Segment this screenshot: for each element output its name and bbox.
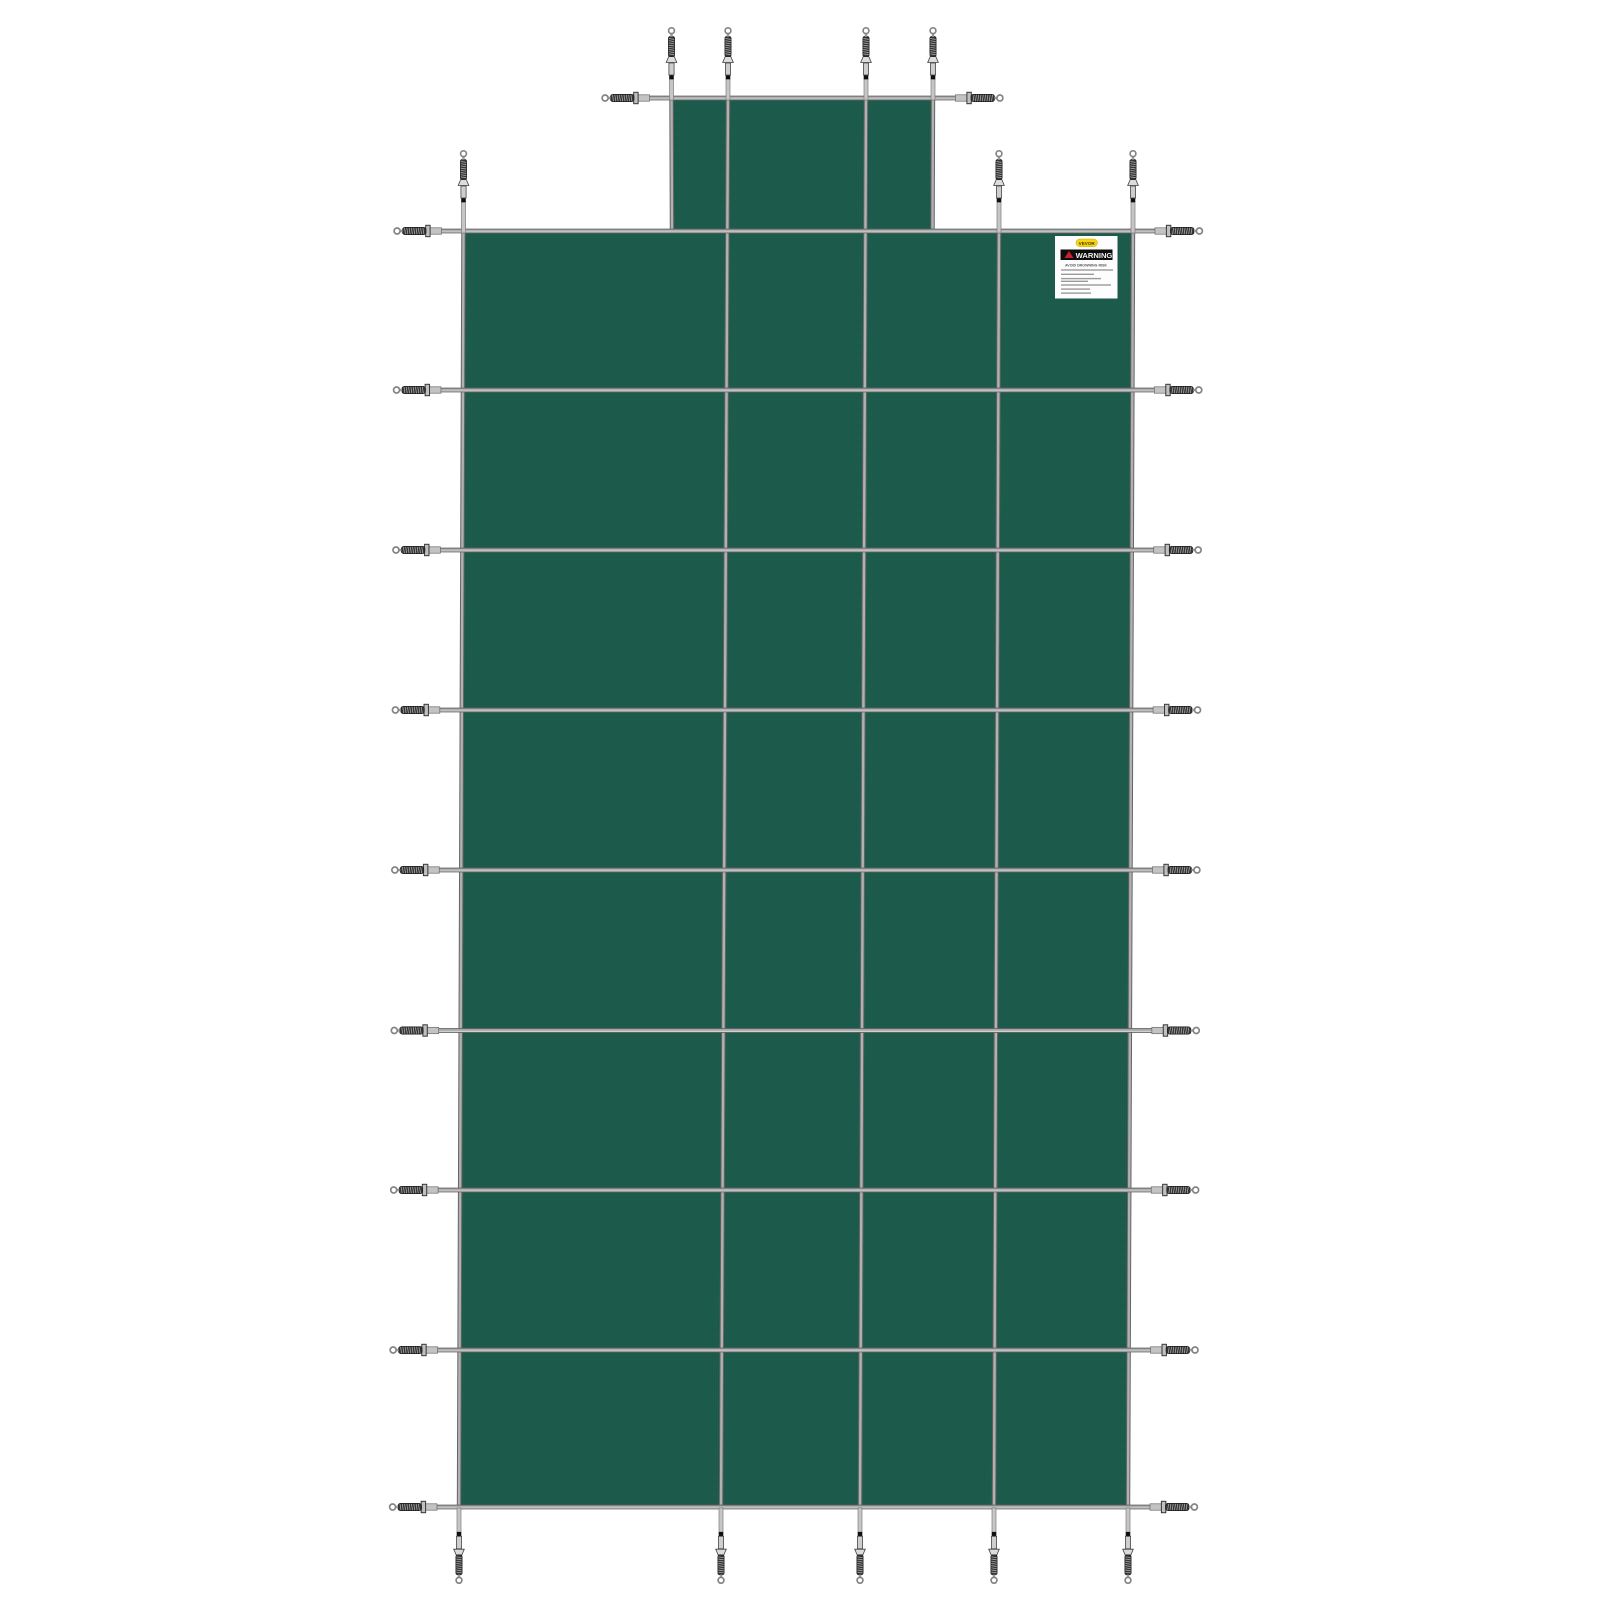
svg-text:VEVOR: VEVOR [1079,241,1096,246]
svg-text:AVOID DROWNING RISK: AVOID DROWNING RISK [1065,263,1107,267]
svg-text:WARNING: WARNING [1076,251,1113,260]
